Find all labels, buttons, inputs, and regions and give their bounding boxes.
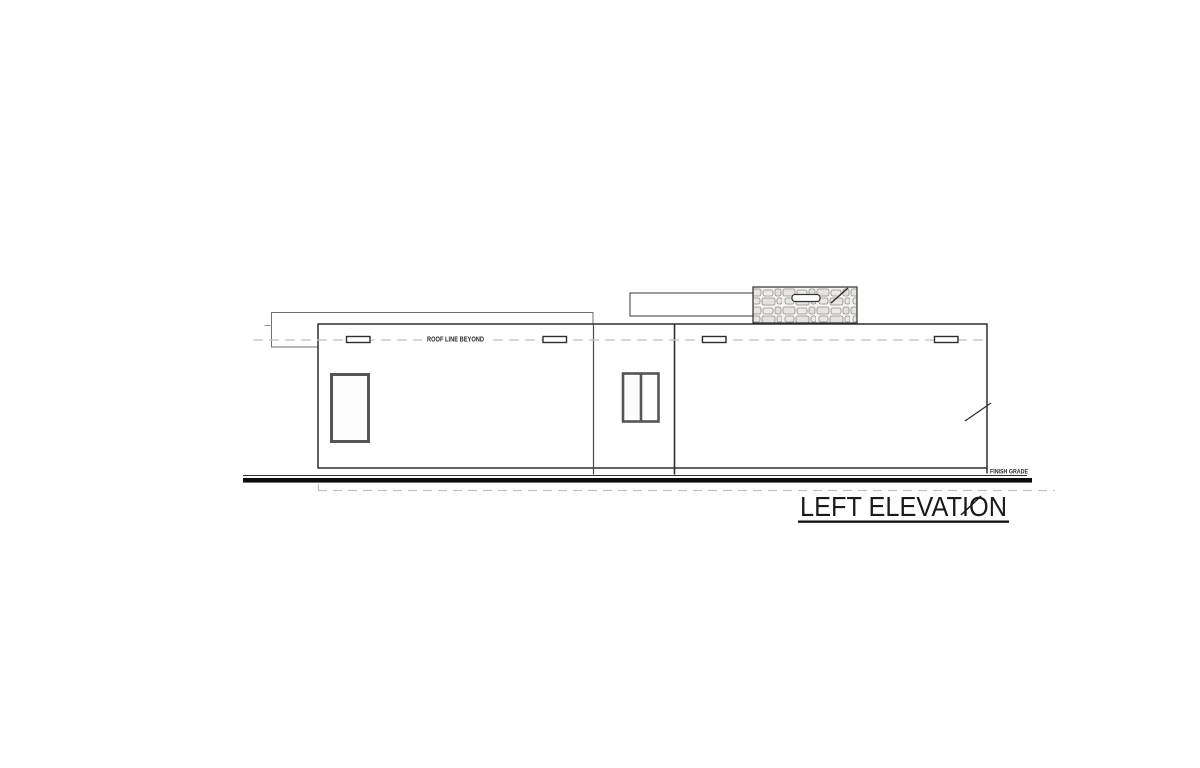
stone-chimney — [753, 287, 857, 323]
roof-line-beyond-label: ROOF LINE BEYOND — [427, 337, 484, 344]
left-window — [332, 375, 369, 442]
roof-vent-2 — [543, 337, 567, 343]
finish-grade-thick-line — [243, 478, 1032, 483]
finish-grade-label: FINISH GRADE — [990, 469, 1029, 476]
roof-vent-4 — [935, 337, 959, 343]
left-elevation-drawing: ROOF LINE BEYOND FINISH GRADE LEFT ELEVA… — [0, 0, 1200, 768]
elevation-sheet: ROOF LINE BEYOND FINISH GRADE LEFT ELEVA… — [0, 0, 1200, 768]
chimney-vent — [792, 295, 820, 302]
parapet-outline — [630, 293, 757, 316]
roof-vent-1 — [347, 337, 371, 343]
title-underline — [798, 521, 1009, 523]
roof-vent-3 — [703, 337, 727, 343]
drawing-title: LEFT ELEVATION — [800, 491, 1007, 522]
